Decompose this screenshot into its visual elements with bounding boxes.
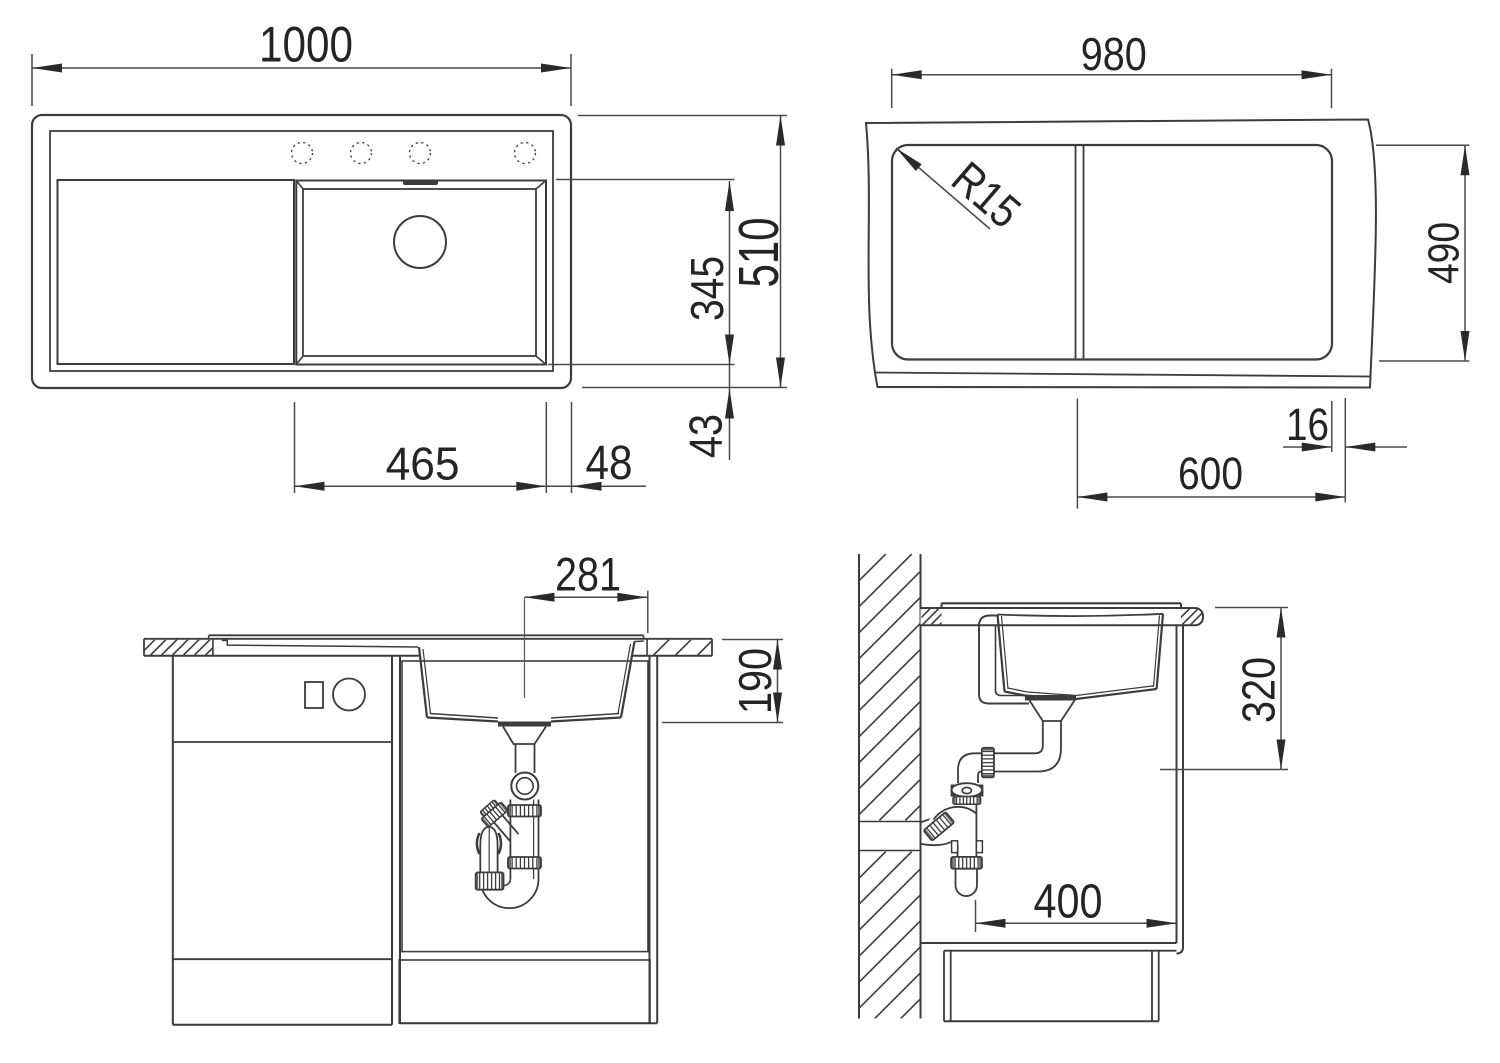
svg-text:43: 43 bbox=[680, 414, 732, 458]
svg-text:16: 16 bbox=[1286, 399, 1329, 450]
svg-text:400: 400 bbox=[1034, 875, 1103, 928]
svg-text:320: 320 bbox=[1233, 657, 1285, 723]
svg-text:600: 600 bbox=[1178, 448, 1243, 499]
svg-text:190: 190 bbox=[729, 648, 781, 714]
svg-text:1000: 1000 bbox=[259, 17, 353, 73]
svg-text:281: 281 bbox=[555, 548, 621, 601]
svg-text:345: 345 bbox=[681, 256, 733, 321]
svg-text:510: 510 bbox=[727, 218, 791, 288]
svg-text:490: 490 bbox=[1419, 222, 1468, 284]
svg-text:48: 48 bbox=[586, 437, 633, 490]
svg-text:980: 980 bbox=[1081, 28, 1147, 80]
svg-text:465: 465 bbox=[386, 438, 460, 490]
